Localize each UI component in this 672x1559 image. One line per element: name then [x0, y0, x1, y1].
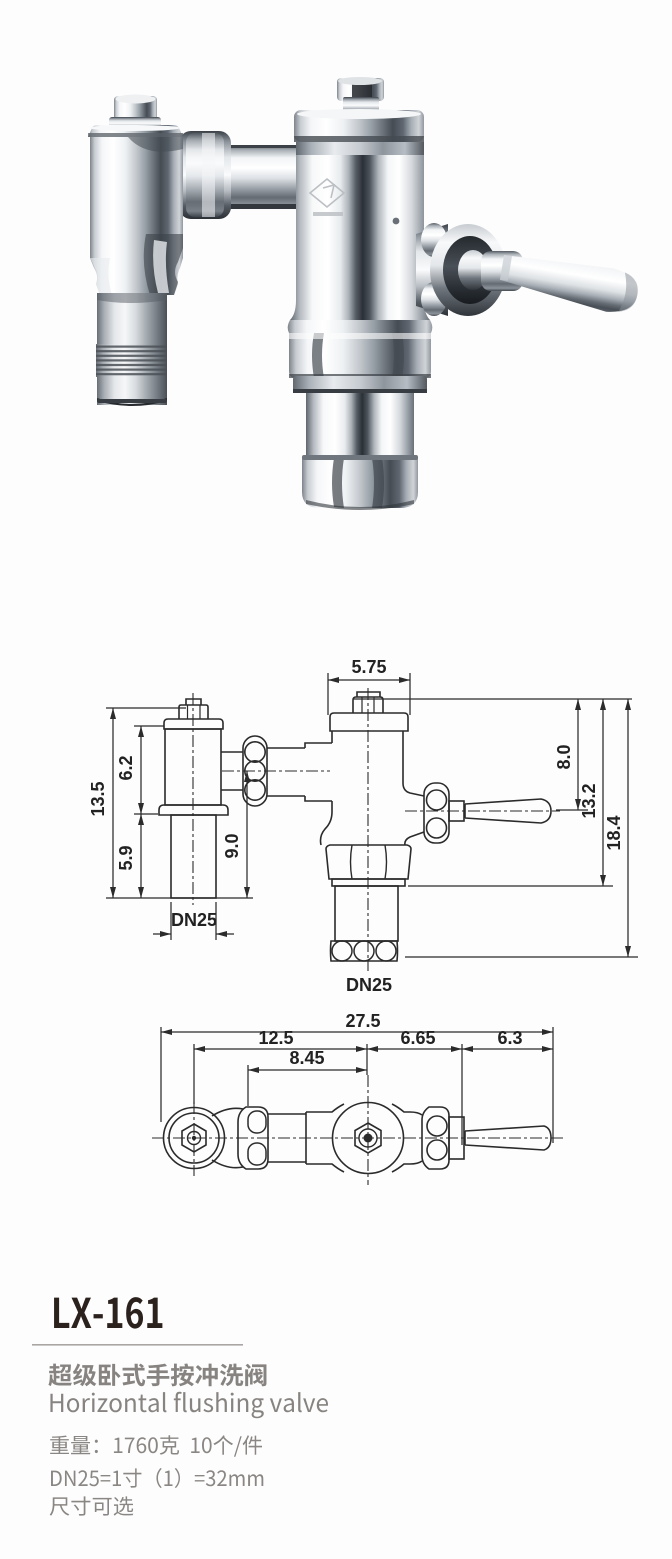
- svg-text:12.5: 12.5: [258, 1028, 293, 1048]
- svg-text:8.45: 8.45: [289, 1048, 324, 1068]
- svg-text:6.3: 6.3: [497, 1028, 522, 1048]
- svg-text:13.5: 13.5: [88, 781, 108, 816]
- svg-text:6.65: 6.65: [400, 1028, 435, 1048]
- svg-text:5.75: 5.75: [351, 657, 386, 677]
- svg-text:18.4: 18.4: [604, 815, 624, 850]
- svg-text:5.9: 5.9: [116, 845, 136, 870]
- svg-text:8.0: 8.0: [554, 744, 574, 769]
- svg-text:9.0: 9.0: [222, 833, 242, 858]
- svg-text:6.2: 6.2: [116, 755, 136, 780]
- svg-text:DN25: DN25: [346, 975, 392, 995]
- svg-text:13.2: 13.2: [579, 783, 599, 818]
- svg-text:DN25: DN25: [171, 910, 217, 930]
- svg-text:27.5: 27.5: [345, 1011, 380, 1031]
